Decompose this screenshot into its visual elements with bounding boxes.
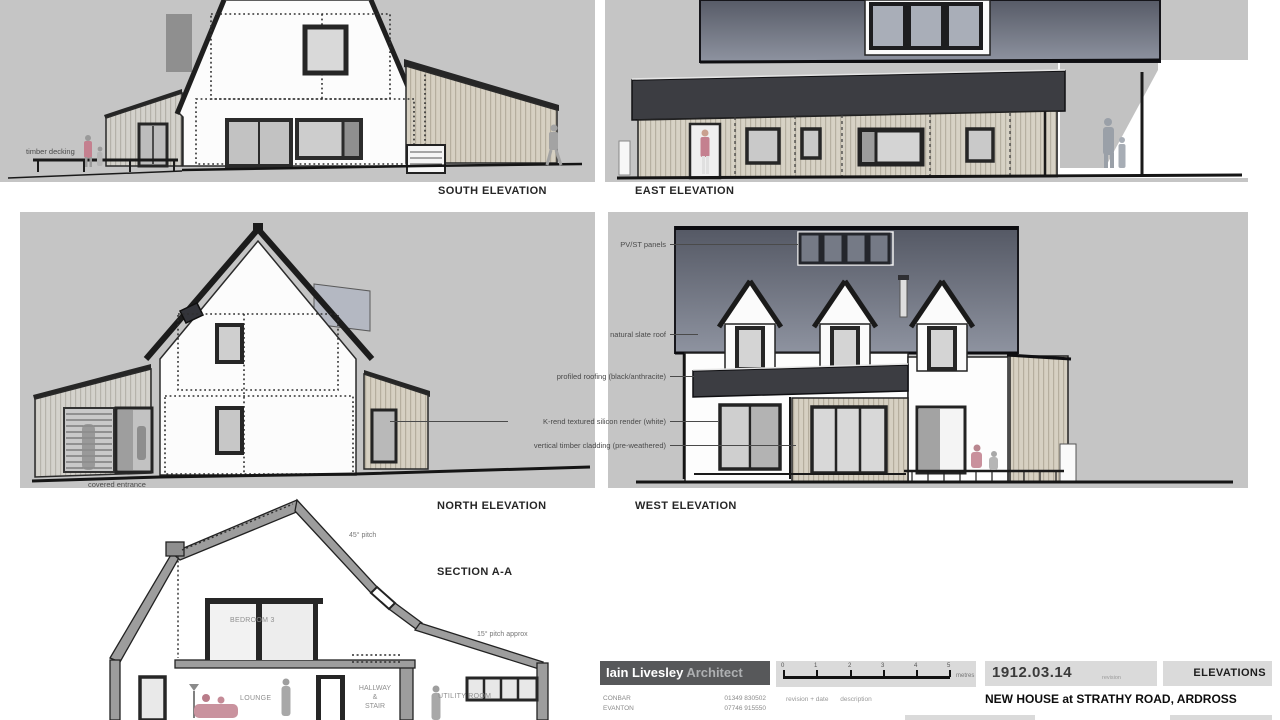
vertical-timber-cladding-leader — [670, 445, 796, 446]
scale-tick — [816, 670, 818, 677]
roof-poche — [110, 500, 543, 669]
profiled-roofing-leader — [670, 376, 694, 377]
scale-tick — [783, 670, 785, 677]
phone-2: 07746 915550 — [690, 705, 766, 712]
pv-st-panels-label: PV/ST panels — [500, 240, 666, 249]
revision-label: revision — [1102, 675, 1121, 681]
south-elevation-drawing — [0, 0, 595, 182]
hallway-line2: & — [353, 693, 397, 702]
address-line2: EVANTON — [603, 705, 634, 712]
natural-slate-roof-leader — [670, 334, 698, 335]
east-elevation-title: EAST ELEVATION — [635, 185, 734, 197]
sliding-door — [227, 120, 291, 166]
firm-suffix: Architect — [686, 665, 742, 680]
phone-1: 01349 830502 — [690, 695, 766, 702]
south-elevation-panel — [0, 0, 595, 182]
pv-st-panels-leader — [670, 244, 798, 245]
gable-window — [305, 27, 346, 73]
internal-door — [316, 675, 345, 720]
drawing-date: 1912.03.14 — [992, 664, 1072, 681]
east-elevation-panel — [605, 0, 1248, 182]
scale-bar — [783, 676, 950, 679]
scale-tick — [850, 670, 852, 677]
scale-bar-box: 0 1 2 3 4 5 metres — [776, 661, 976, 687]
entrance-door — [690, 124, 720, 178]
rooflight-band — [865, 0, 990, 55]
external-unit — [407, 145, 445, 173]
k-rend-label: K-rend textured silicon render (white) — [500, 417, 666, 426]
utility-room-label: UTILITY ROOM — [438, 693, 491, 700]
profiled-roofing-label: profiled roofing (black/anthracite) — [500, 372, 666, 381]
scale-unit: metres — [956, 673, 974, 679]
section-rooflight — [371, 587, 395, 609]
west-doors — [720, 405, 965, 473]
hallway-line3: STAIR — [353, 702, 397, 711]
address-line1: CONBAR — [603, 695, 631, 702]
north-elevation-title: NORTH ELEVATION — [437, 500, 546, 512]
title-block-cell — [905, 715, 1035, 720]
west-elevation-panel — [608, 212, 1248, 488]
south-left-wing — [104, 89, 182, 166]
project-title: NEW HOUSE at STRATHY ROAD, ARDROSS — [985, 692, 1237, 706]
dormers — [719, 281, 973, 371]
background-block — [166, 14, 192, 72]
section-title: SECTION A-A — [437, 566, 513, 578]
k-rend-leader-left — [390, 421, 508, 422]
right-timber-block — [1007, 355, 1076, 482]
scale-label-0: 0 — [781, 663, 784, 669]
firm-name-bar: Iain LivesleyArchitect — [600, 661, 770, 685]
revision-header-2: description — [840, 696, 871, 703]
hallway-stair-label: HALLWAY & STAIR — [353, 684, 397, 711]
section-panel — [90, 490, 560, 720]
west-elevation-title: WEST ELEVATION — [635, 500, 737, 512]
hallway-line1: HALLWAY — [353, 684, 397, 693]
revision-header-1: revision + date — [786, 696, 828, 703]
sheet-name: ELEVATIONS — [1163, 661, 1272, 686]
north-left-wing — [33, 364, 152, 477]
pitch-15-label: 15° pitch approx — [477, 631, 528, 638]
scale-label-4: 4 — [914, 663, 917, 669]
revision-header: revision + date description — [786, 696, 872, 703]
bedroom-glazing — [205, 598, 323, 660]
window-pair — [297, 120, 361, 158]
drawing-sheet: SOUTH ELEVATION EAST ELEVATION NORTH ELE… — [0, 0, 1280, 720]
bedroom3-label: BEDROOM 3 — [230, 617, 275, 624]
person-shadow — [82, 424, 95, 470]
south-elevation-title: SOUTH ELEVATION — [438, 185, 547, 197]
pv-st-panel-array — [798, 232, 893, 265]
scale-tick — [949, 670, 951, 677]
covered-entrance-label: covered entrance — [88, 480, 146, 489]
scale-label-5: 5 — [947, 663, 950, 669]
scale-label-3: 3 — [881, 663, 884, 669]
vertical-timber-cladding-label: vertical timber cladding (pre-weathered) — [500, 441, 666, 450]
lounge-label: LOUNGE — [240, 695, 271, 702]
section-drawing — [90, 490, 560, 720]
firm-name: Iain Livesley — [606, 665, 683, 680]
west-elevation-drawing — [608, 212, 1248, 488]
pitch-45-label: 45° pitch — [349, 532, 376, 539]
natural-slate-roof-label: natural slate roof — [500, 330, 666, 339]
scale-label-1: 1 — [814, 663, 817, 669]
external-door — [140, 677, 165, 720]
scale-label-2: 2 — [848, 663, 851, 669]
east-elevation-drawing — [605, 0, 1248, 182]
north-right-wing — [364, 370, 430, 469]
flue-pipe — [898, 275, 909, 317]
title-block-cell — [1170, 715, 1272, 720]
timber-decking-label: timber decking — [26, 147, 75, 156]
k-rend-leader-right — [670, 421, 718, 422]
scale-tick — [883, 670, 885, 677]
scale-tick — [916, 670, 918, 677]
